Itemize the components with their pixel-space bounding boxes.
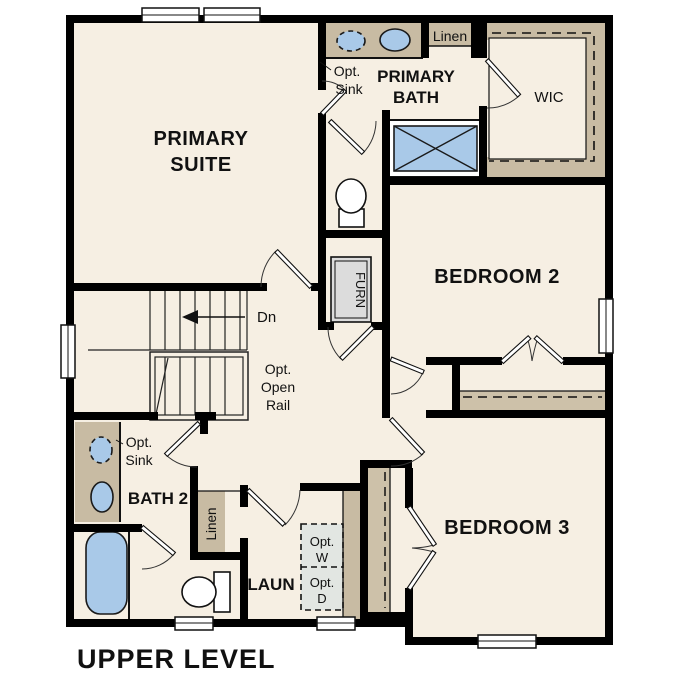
stairs-down-label: Dn	[257, 309, 276, 326]
opt-washer-line2: W	[316, 550, 329, 565]
opt-sink-primary-line2: Sink	[335, 81, 363, 97]
laundry-counter	[343, 491, 360, 619]
opt-dryer-line1: Opt.	[310, 575, 335, 590]
open-rail-line3: Rail	[266, 397, 290, 413]
opt-sink-bath2-line1: Opt.	[126, 434, 152, 450]
primary-toilet-icon	[336, 179, 366, 227]
optional-sink-icon	[90, 437, 112, 463]
wic-shelf-bottom	[487, 157, 605, 177]
window	[478, 635, 536, 648]
wall-linen-hall-left	[421, 23, 429, 58]
wall-laundry-top	[300, 483, 368, 491]
primary-bath-label-line2: BATH	[393, 88, 439, 107]
sink-icon	[91, 482, 113, 512]
wall-suite-bottom	[74, 283, 267, 291]
shower	[388, 120, 483, 177]
page-title: UPPER LEVEL	[77, 644, 276, 674]
wall-furnace-left	[318, 238, 326, 330]
floor-plan-drawing: PRIMARY SUITE PRIMARY BATH Linen WIC BED…	[0, 0, 687, 687]
wic-label: WIC	[534, 89, 563, 106]
wall-linen2-bottom	[190, 552, 248, 560]
opt-washer-line1: Opt.	[310, 534, 335, 549]
floor-plan-page: PRIMARY SUITE PRIMARY BATH Linen WIC BED…	[0, 0, 687, 687]
open-rail-line1: Opt.	[265, 361, 291, 377]
bedroom2-label: BEDROOM 2	[434, 266, 560, 288]
wall-bedroom2-bedroom3	[426, 410, 613, 418]
wall-linen2-left	[190, 466, 198, 560]
wall-bath2-divider	[66, 524, 142, 532]
wall-water-closet-left	[318, 113, 326, 238]
sink-icon	[380, 29, 410, 51]
primary-suite-label-line1: PRIMARY	[154, 128, 249, 150]
window	[204, 8, 260, 22]
exterior-wall-left	[66, 15, 74, 627]
furnace-label: FURN	[353, 272, 368, 308]
primary-suite-label-line2: SUITE	[170, 154, 231, 176]
bath2-label: BATH 2	[128, 489, 188, 508]
exterior-wall-bottom-left	[66, 619, 413, 627]
bedroom3-label: BEDROOM 3	[444, 517, 570, 539]
wall-bedroom2-top	[382, 177, 613, 185]
wall-laundry-right	[360, 460, 368, 620]
opt-sink-bath2-line2: Sink	[125, 452, 153, 468]
window	[142, 8, 199, 22]
wall-linen-hall-right	[471, 23, 487, 58]
wall-wic-left	[479, 106, 487, 180]
bedroom2-closet-shelf	[460, 391, 605, 410]
wall-closet2-left	[452, 357, 460, 418]
laundry-label: LAUN	[247, 575, 294, 594]
opt-dryer-line2: D	[317, 591, 326, 606]
bathtub-icon	[86, 532, 127, 614]
wall-suite-bath	[318, 23, 326, 90]
window	[599, 299, 613, 353]
window	[175, 617, 213, 630]
optional-sink-icon	[337, 31, 365, 51]
wall-stairs-bath2	[66, 412, 158, 420]
opt-sink-primary-line1: Opt.	[334, 63, 360, 79]
window	[317, 617, 355, 630]
bedroom3-closet-shelf	[368, 468, 390, 612]
open-rail-line2: Open	[261, 379, 295, 395]
linen-bath2-label: Linen	[204, 507, 219, 540]
primary-bath-label-line1: PRIMARY	[377, 67, 455, 86]
linen-hall-label: Linen	[433, 28, 467, 44]
wall-mid-vertical	[382, 110, 390, 418]
window	[61, 325, 75, 378]
